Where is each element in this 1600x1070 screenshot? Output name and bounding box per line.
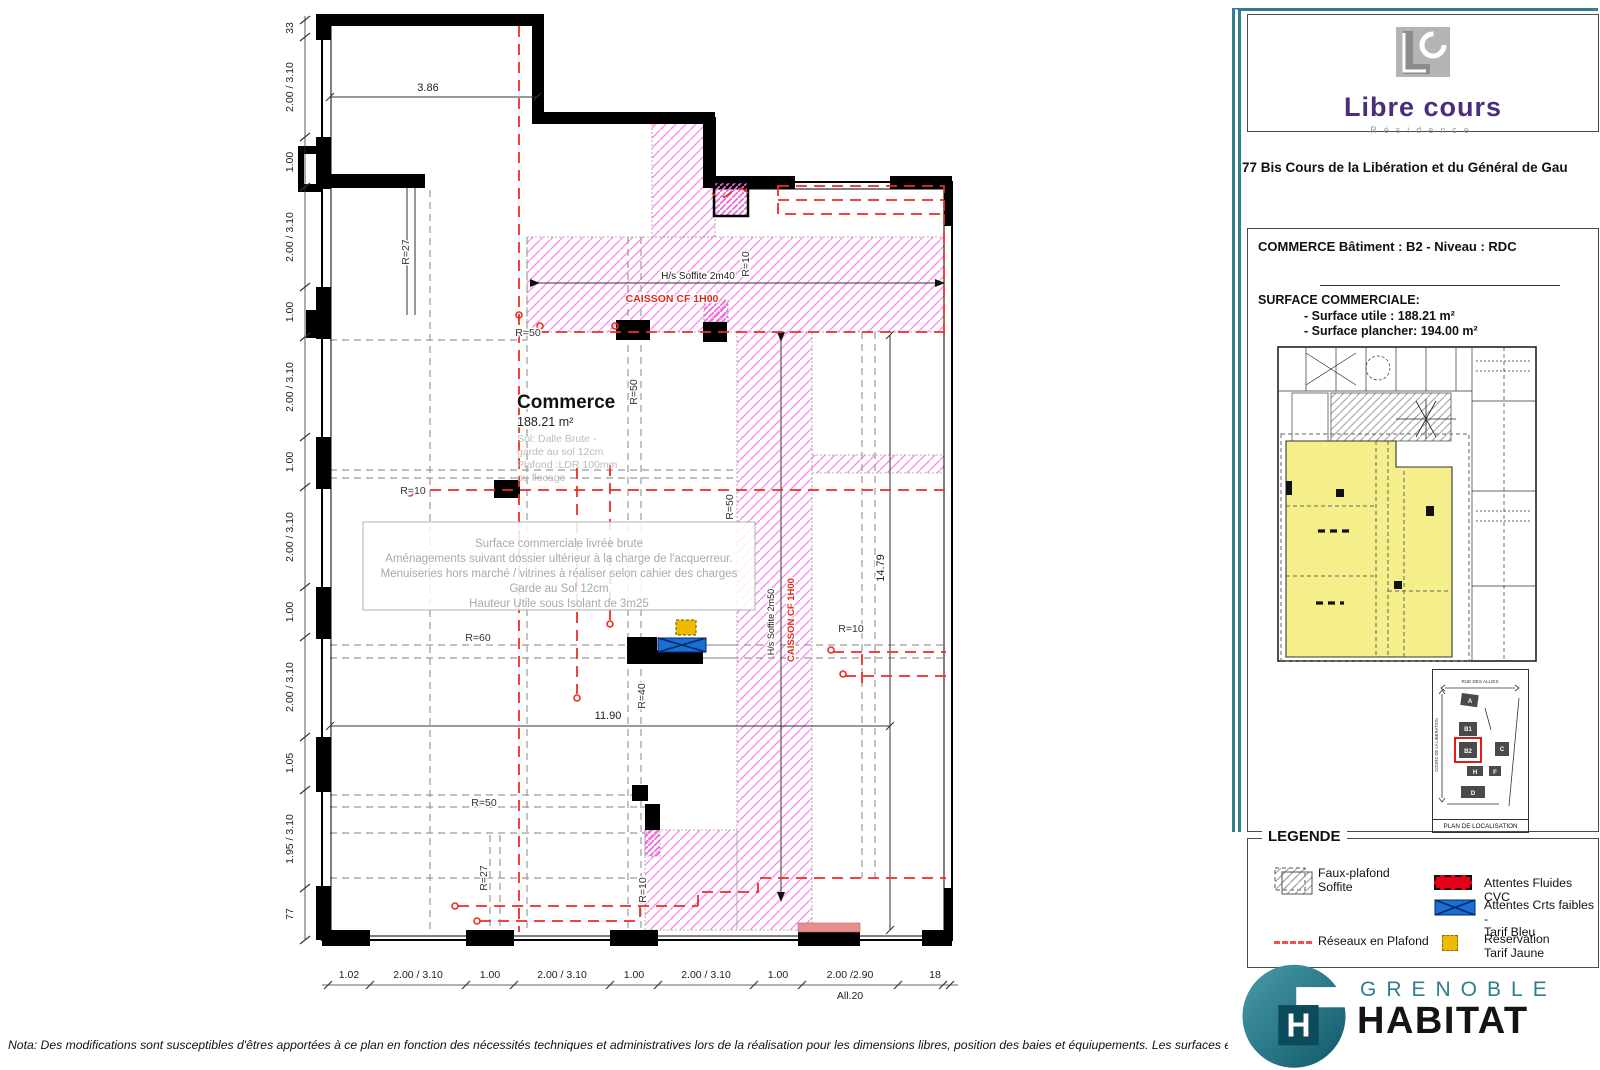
svg-text:R=40: R=40 (636, 683, 648, 709)
surface-utile: - Surface utile : 188.21 m² (1304, 309, 1455, 323)
svg-text:R=27: R=27 (400, 239, 412, 265)
grenoble-habitat-logo: H GRENOBLE HABITAT (1238, 958, 1600, 1070)
reservation-marker (676, 620, 696, 635)
svg-text:R=50: R=50 (724, 494, 736, 520)
separator-line (1320, 285, 1560, 286)
svg-text:1.00: 1.00 (284, 152, 296, 173)
surface-plancher: - Surface plancher: 194.00 m² (1304, 324, 1478, 338)
svg-text:R=50: R=50 (628, 379, 640, 405)
svg-text:Hauteur Utile sous Isolant de: Hauteur Utile sous Isolant de 3m25 (469, 598, 649, 610)
svg-text:1.02: 1.02 (339, 969, 360, 981)
wall-outline (322, 20, 952, 940)
soffit-height-label-vertical: H/s Soffite 2m50 (766, 589, 776, 655)
attente-crt-marker (658, 638, 706, 652)
svg-text:ou flocage: ou flocage (517, 472, 566, 484)
svg-text:2.00 /2.90: 2.00 /2.90 (827, 969, 874, 981)
svg-text:C: C (1500, 747, 1505, 753)
surface-title: SURFACE COMMERCIALE: (1258, 293, 1420, 307)
svg-text:H: H (1286, 1007, 1310, 1044)
svg-text:Surface commerciale livrée bru: Surface commerciale livrée brute (475, 538, 643, 550)
svg-text:1.00: 1.00 (768, 969, 789, 981)
soffit-height-label: H/s Soffite 2m40 (661, 271, 735, 282)
svg-text:188.21 m²: 188.21 m² (517, 415, 573, 429)
allege-note: All.20 (837, 990, 863, 1002)
floor-plan-sheet: 3.86 11.90 14.79 H/s Soffite 2m40 CAISSO… (0, 0, 1600, 1070)
gh-logo-icon: H (1238, 958, 1350, 1070)
svg-text:F: F (1493, 770, 1497, 776)
title-block-panel: Libre cours Résidence 77 Bis Cours de la… (1232, 0, 1600, 1070)
note-box: Surface commerciale livrée brute Aménage… (363, 522, 755, 610)
svg-text:R=50: R=50 (471, 797, 497, 809)
faux-plafond-icon (1274, 867, 1314, 895)
attente-cvc-marker (798, 923, 860, 932)
location-map-label: PLAN DE LOCALISATION (1433, 819, 1528, 832)
svg-text:R=10: R=10 (740, 251, 752, 277)
floor-plan-drawing: 3.86 11.90 14.79 H/s Soffite 2m40 CAISSO… (0, 0, 1232, 1070)
gh-logo-text-grenoble: GRENOBLE (1360, 978, 1557, 1002)
building-level-line: COMMERCE Bâtiment : B2 - Niveau : RDC (1258, 239, 1517, 254)
reseaux-plafond-label: Réseaux en Plafond (1318, 935, 1429, 949)
svg-text:2.00 / 3.10: 2.00 / 3.10 (284, 512, 296, 562)
svg-text:2.00 / 3.10: 2.00 / 3.10 (681, 969, 731, 981)
bottom-dimension-chain: 1.02 2.00 / 3.10 1.00 2.00 / 3.10 1.00 2… (322, 969, 958, 1002)
street-top-label: RUE DES ALLIES (1461, 679, 1498, 684)
attentes-crt-icon (1434, 899, 1476, 916)
key-plan (1276, 341, 1548, 672)
svg-text:B2: B2 (1464, 749, 1472, 755)
plan-info-box: COMMERCE Bâtiment : B2 - Niveau : RDC SU… (1247, 228, 1599, 832)
svg-text:1.00: 1.00 (284, 602, 296, 623)
svg-text:2.00 / 3.10: 2.00 / 3.10 (393, 969, 443, 981)
svg-text:77: 77 (284, 908, 296, 920)
svg-text:2.00 / 3.10: 2.00 / 3.10 (537, 969, 587, 981)
location-map-box: RUE DES ALLIES COURS DE LA LIBERATION A … (1432, 669, 1529, 833)
attentes-cvc-icon (1434, 875, 1472, 890)
reseaux-plafond-icon (1274, 941, 1312, 944)
svg-text:2.00 / 3.10: 2.00 / 3.10 (284, 212, 296, 262)
svg-text:Aménagements suivant dossier u: Aménagements suivant dossier ultérieur à… (385, 553, 732, 565)
faux-plafond-label: Faux-plafond Soffite (1318, 867, 1390, 894)
dim-1190: 11.90 (595, 710, 622, 722)
street-left-label: COURS DE LA LIBERATION (1434, 718, 1439, 772)
project-address: 77 Bis Cours de la Libération et du Géné… (1242, 160, 1600, 175)
lc-logo-icon (1388, 23, 1458, 85)
svg-text:garde au sol 12cm: garde au sol 12cm (517, 446, 604, 458)
svg-text:D: D (1471, 791, 1476, 797)
brand-logo-box: Libre cours Résidence (1247, 14, 1599, 132)
svg-text:R=10: R=10 (400, 485, 426, 497)
svg-text:1.00: 1.00 (624, 969, 645, 981)
dim-1479: 14.79 (875, 554, 887, 582)
svg-text:R=10: R=10 (637, 877, 649, 903)
svg-text:2.00 / 3.10: 2.00 / 3.10 (284, 362, 296, 412)
room-label: Commerce 188.21 m² Sol: Dalle Brute - ga… (517, 392, 618, 484)
reservation-label: Reservation Tarif Jaune (1484, 933, 1550, 960)
svg-text:A: A (1468, 699, 1473, 705)
svg-text:R=27: R=27 (478, 865, 490, 891)
svg-text:R=60: R=60 (465, 632, 491, 644)
svg-text:R=10: R=10 (838, 623, 864, 635)
wall-stub-window (304, 154, 316, 184)
svg-text:Garde au Sol 12cm: Garde au Sol 12cm (509, 583, 608, 595)
reservation-icon (1442, 935, 1458, 951)
location-map: RUE DES ALLIES COURS DE LA LIBERATION A … (1433, 670, 1528, 820)
gh-logo-text-habitat: HABITAT (1357, 1000, 1529, 1043)
wall-piers (298, 14, 952, 946)
svg-text:2.00 / 3.10: 2.00 / 3.10 (284, 662, 296, 712)
svg-text:B1: B1 (1464, 727, 1472, 733)
legend-box: LEGENDE Faux-plafond Soffite Réseaux en … (1247, 838, 1599, 968)
svg-text:1.00: 1.00 (284, 452, 296, 473)
svg-text:Sol: Dalle Brute -: Sol: Dalle Brute - (517, 433, 597, 445)
svg-text:Menuiseries hors marché / vitr: Menuiseries hors marché / vitrines à réa… (381, 568, 738, 580)
caisson-label: CAISSON CF 1H00 (626, 293, 719, 305)
svg-text:1.00: 1.00 (284, 302, 296, 323)
caisson-label-vertical: CAISSON CF 1H00 (786, 578, 797, 662)
svg-text:33: 33 (284, 22, 296, 34)
svg-text:Plafond :LDR 100mm: Plafond :LDR 100mm (517, 459, 618, 471)
legend-title: LEGENDE (1262, 828, 1347, 845)
svg-text:1.05: 1.05 (284, 753, 296, 774)
brand-subtitle: Résidence (1248, 125, 1598, 135)
dim-386: 3.86 (417, 82, 438, 94)
svg-text:1.95 / 3.10: 1.95 / 3.10 (284, 814, 296, 864)
svg-text:H: H (1473, 770, 1477, 776)
svg-text:18: 18 (929, 969, 941, 981)
brand-name: Libre cours (1248, 92, 1598, 123)
svg-text:1.00: 1.00 (480, 969, 501, 981)
small-duct-room (714, 182, 748, 216)
interior-dimensions (326, 93, 943, 934)
nota-footnote: Nota: Des modifications sont susceptible… (8, 1038, 1228, 1052)
svg-text:R=50: R=50 (515, 327, 541, 339)
svg-text:2.00 / 3.10: 2.00 / 3.10 (284, 62, 296, 112)
svg-text:Commerce: Commerce (517, 392, 615, 413)
